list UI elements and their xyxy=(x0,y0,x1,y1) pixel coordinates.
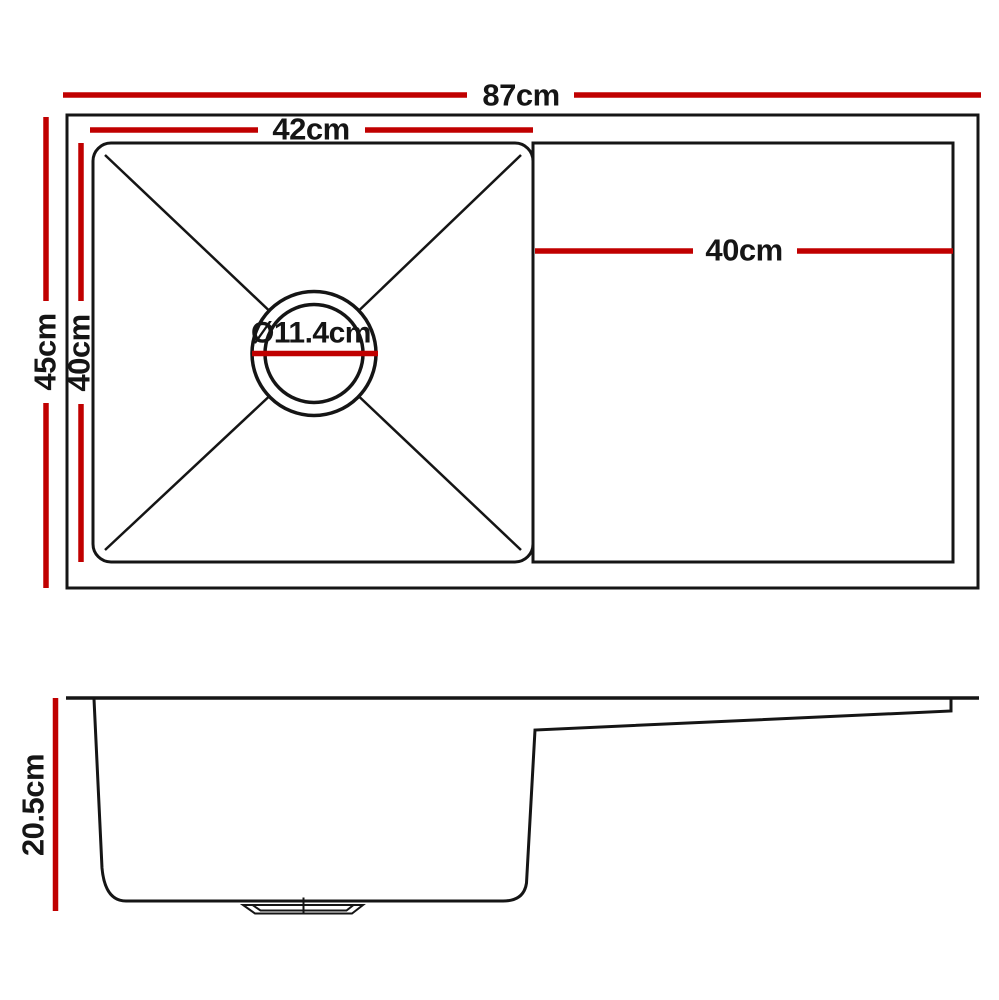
bowl-crease-bottom-left xyxy=(105,397,269,551)
bowl-crease-top-right xyxy=(359,155,521,311)
side-view-profile-outline xyxy=(94,699,951,901)
dim-drainer-width-label: 40cm xyxy=(705,233,782,268)
dim-overall-width-label: 87cm xyxy=(482,78,559,113)
diagram-svg: 87cm 42cm 40cm 45cm 40cm Ø11.4cm xyxy=(0,0,999,1000)
side-view: 20.5cm xyxy=(16,698,980,914)
dim-bowl-height-label: 20.5cm xyxy=(16,754,51,856)
dim-drain-diameter-label: Ø11.4cm xyxy=(251,317,371,350)
top-view-drainer-outline xyxy=(533,143,953,562)
top-view-outer-rim-outline xyxy=(67,115,978,588)
dim-bowl-depth-label: 40cm xyxy=(62,314,97,391)
dim-bowl-width-label: 42cm xyxy=(272,112,349,147)
dim-overall-depth-label: 45cm xyxy=(28,313,63,390)
bowl-crease-top-left xyxy=(105,155,269,311)
sink-dimension-diagram: 87cm 42cm 40cm 45cm 40cm Ø11.4cm xyxy=(0,0,999,1000)
bowl-crease-bottom-right xyxy=(359,397,521,551)
top-view: 87cm 42cm 40cm 45cm 40cm Ø11.4cm xyxy=(28,78,982,589)
